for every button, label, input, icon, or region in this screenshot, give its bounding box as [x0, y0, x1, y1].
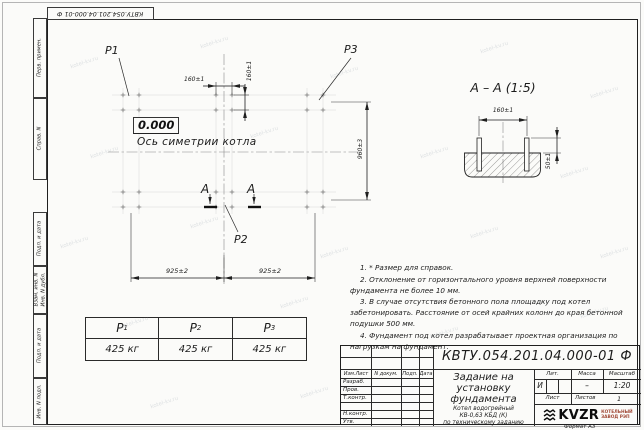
- sidebar-label-inv-podl: Инв. N подл.: [36, 362, 45, 430]
- load-label-p3: P3: [344, 44, 358, 55]
- role-razrab: Разраб.: [343, 380, 365, 386]
- load-label-p2: P2: [234, 234, 248, 245]
- mass-label: Масса: [571, 372, 603, 378]
- rev-header-izm-list: Изм.Лист: [341, 372, 371, 377]
- role-nkontr: Н.контр.: [343, 412, 368, 418]
- dim-160-vertical: 160±1: [247, 31, 253, 111]
- rev-header-data: Дата: [419, 372, 433, 377]
- title-block: КВТУ.054.201.04.000-01 Ф Изм.Лист N доку…: [340, 345, 640, 425]
- drawing-designation: КВТУ.054.201.04.000-01 Ф: [433, 350, 641, 363]
- rev-header-n-dokum: N докум.: [371, 372, 401, 377]
- load-table-value-p2: 425 кг: [159, 339, 232, 360]
- drawing-sheet: КВТУ.054.201.04.000-01 Ф Перв. примен. С…: [0, 0, 644, 430]
- section-view-title: А – А (1:5): [455, 82, 551, 95]
- load-table-header-p3: P3: [233, 318, 306, 339]
- doc-title-line-2: установку: [433, 384, 534, 394]
- load-table-header-p2: P2: [159, 318, 232, 339]
- load-label-p1: P1: [105, 45, 119, 56]
- doc-title-line-3: фундамента: [433, 395, 534, 405]
- sidebar-label-sprav-n: Справ. N: [36, 99, 45, 179]
- doc-subtitle-line-2: КВ-0,63 КБД (К): [433, 414, 534, 420]
- sheets-label: Листов: [575, 396, 596, 402]
- section-dim-160: 160±1: [483, 108, 523, 114]
- load-table-value-p1: 425 кг: [86, 339, 159, 360]
- section-letter-right: А: [247, 183, 255, 195]
- load-table: P1 P2 P3 425 кг 425 кг 425 кг: [85, 317, 307, 361]
- role-tkontr: Т.контр.: [343, 396, 367, 402]
- kvzr-logo-emblem-icon: [543, 409, 556, 422]
- format-label: Формат А3: [564, 425, 595, 430]
- rotated-designation-stamp: КВТУ.054.201.04.000-01 Ф: [47, 7, 154, 20]
- kvzr-logo: KVZR КОТЕЛЬНЫЙ ЗАВОД РЭП: [537, 406, 639, 424]
- dim-925-right: 925±2: [240, 268, 300, 275]
- note-1: 1. * Размер для справок.: [350, 263, 642, 274]
- rotated-designation-text: КВТУ.054.201.04.000-01 Ф: [57, 10, 143, 17]
- sheet-label: Лист: [534, 396, 571, 402]
- load-table-value-p3: 425 кг: [233, 339, 306, 360]
- dim-960: 960±3: [358, 109, 364, 189]
- rev-header-podp: Подп.: [401, 372, 419, 377]
- note-2: 2. Отклонение от горизонтального уровня …: [350, 275, 642, 297]
- mass-value: –: [571, 382, 603, 390]
- dim-160-horizontal: 160±1: [184, 77, 204, 83]
- boiler-symmetry-axis-label: Ось симетрии котла: [137, 137, 257, 148]
- lit-label: Лит.: [534, 372, 571, 378]
- sheets-value: 1: [617, 396, 621, 403]
- section-letter-left: А: [201, 183, 209, 195]
- kvzr-logo-text: KVZR: [558, 409, 599, 422]
- kvzr-logo-caption: КОТЕЛЬНЫЙ ЗАВОД РЭП: [601, 410, 633, 420]
- doc-title-line-1: Задание на: [433, 373, 534, 383]
- dim-925-left: 925±2: [147, 268, 207, 275]
- lit-value: И: [534, 382, 546, 390]
- scale-label: Масштаб: [603, 372, 641, 378]
- section-dim-50: 50±1: [546, 121, 552, 201]
- doc-subtitle-line-3: по техническому заданию: [433, 421, 534, 427]
- role-utv: Утв.: [343, 420, 355, 426]
- doc-subtitle-line-1: Котел водогрейный: [433, 407, 534, 413]
- level-mark: 0.000: [133, 117, 179, 134]
- sidebar-label-perv-primen: Перв. примен.: [36, 18, 45, 98]
- role-prov: Пров.: [343, 388, 359, 394]
- scale-value: 1:20: [603, 382, 641, 390]
